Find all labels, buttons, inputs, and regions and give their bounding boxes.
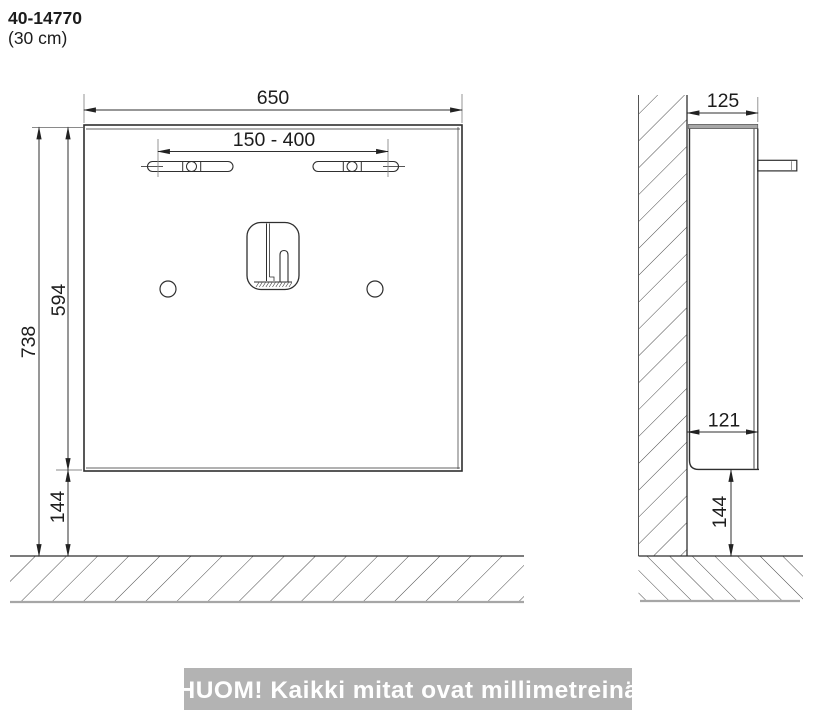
mounting-slot-right <box>313 162 405 172</box>
mounting-panel <box>84 125 462 471</box>
note-bar: HUOM! Kaikki mitat ovat millimetreinä <box>178 668 639 710</box>
unit-body <box>689 124 797 469</box>
dim-bottom-clearance-side: 144 <box>709 470 731 556</box>
side-view: 125 121 144 <box>639 90 804 602</box>
drawing-canvas: 40-14770 (30 cm) <box>0 0 816 722</box>
dim-label-144-front: 144 <box>47 491 69 524</box>
screw-right <box>343 162 361 172</box>
dim-overall-depth: 125 <box>688 90 758 122</box>
dim-label-144-side: 144 <box>709 496 731 529</box>
floor-section-side <box>639 556 804 602</box>
dim-panel-height: 594 <box>48 128 82 471</box>
dim-label-150-400: 150 - 400 <box>233 129 316 151</box>
bracket-hatch <box>256 283 292 287</box>
hole-left <box>160 281 176 297</box>
dim-label-121: 121 <box>708 410 741 432</box>
dim-slot-range: 150 - 400 <box>158 129 388 177</box>
wall-hatch <box>639 95 688 556</box>
unit-top-cap <box>689 124 758 128</box>
dim-bottom-clearance-front: 144 <box>47 470 69 556</box>
floor-hatch-front <box>10 556 524 602</box>
size-label: (30 cm) <box>8 28 67 48</box>
dim-label-594: 594 <box>48 284 70 317</box>
mounting-slot-left <box>141 162 233 172</box>
wall-section <box>639 95 688 556</box>
front-view: 650 150 - 400 738 594 144 <box>10 87 524 602</box>
floor-section-front <box>10 556 524 602</box>
dim-label-650: 650 <box>257 87 290 109</box>
dim-overall-width: 650 <box>84 87 462 123</box>
dim-label-738: 738 <box>18 326 40 359</box>
technical-drawing-page: 40-14770 (30 cm) <box>0 0 816 722</box>
hole-right <box>367 281 383 297</box>
floor-hatch-side <box>639 556 804 602</box>
screw-left <box>183 162 201 172</box>
dim-label-125: 125 <box>707 90 740 112</box>
note-text: HUOM! Kaikki mitat ovat millimetreinä <box>178 677 639 704</box>
keyhole-bracket <box>247 223 299 290</box>
product-code: 40-14770 <box>8 8 82 28</box>
spout <box>758 160 797 171</box>
